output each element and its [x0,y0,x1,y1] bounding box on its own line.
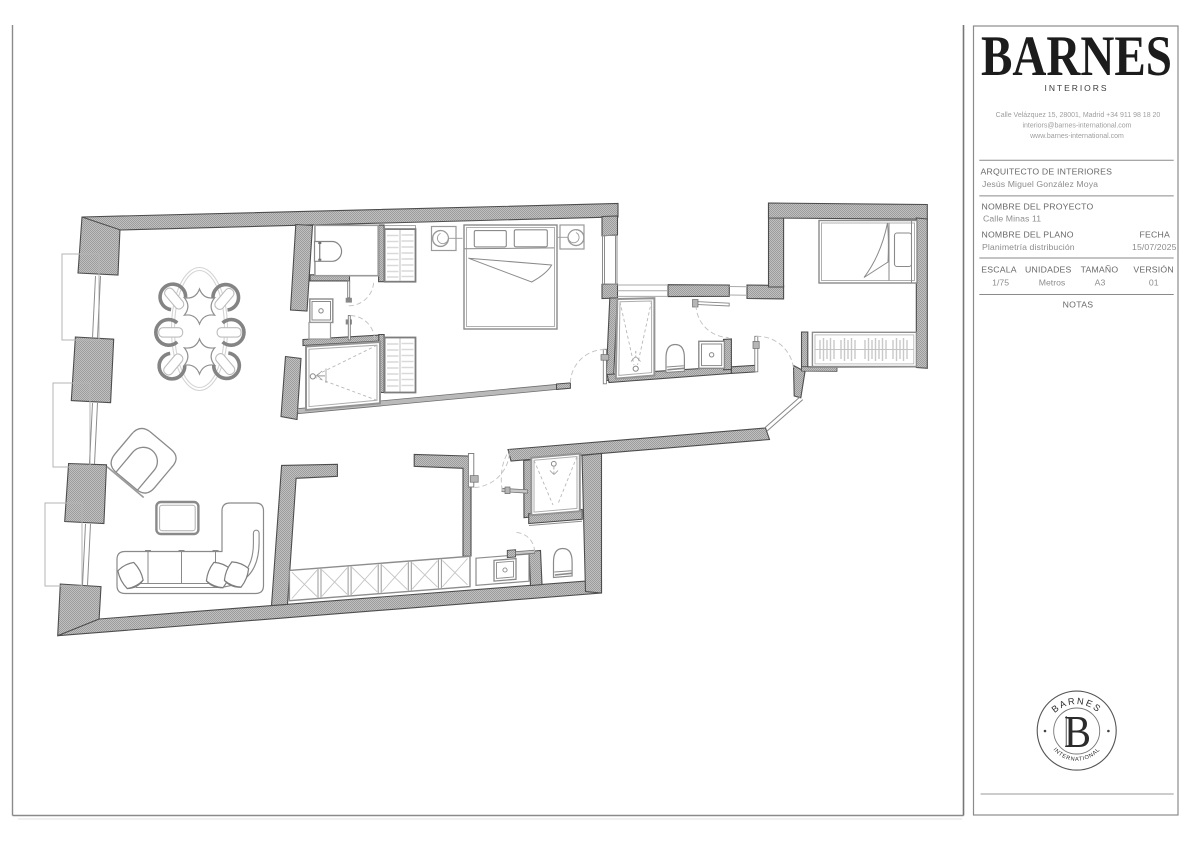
svg-text:TAMAÑO: TAMAÑO [1081,264,1119,274]
svg-text:ARQUITECTO DE INTERIORES: ARQUITECTO DE INTERIORES [981,167,1113,177]
svg-text:B: B [1064,706,1091,757]
svg-text:BARNES: BARNES [981,25,1172,88]
svg-text:interiors@barnes-international: interiors@barnes-international.com [1022,122,1131,129]
svg-text:Planimetría distribución: Planimetría distribución [982,242,1075,252]
svg-text:NOMBRE DEL PLANO: NOMBRE DEL PLANO [982,229,1074,239]
svg-text:VERSIÓN: VERSIÓN [1133,264,1174,274]
svg-text:Calle Velázquez 15, 28001, Mad: Calle Velázquez 15, 28001, Madrid +34 91… [996,112,1161,119]
svg-text:www.barnes-international.com: www.barnes-international.com [1029,133,1124,140]
svg-text:Calle Minas 11: Calle Minas 11 [983,214,1041,224]
svg-text:FECHA: FECHA [1140,229,1170,239]
svg-text:1/75: 1/75 [992,277,1009,287]
svg-text:01: 01 [1149,277,1159,287]
svg-text:NOTAS: NOTAS [1063,300,1094,310]
svg-text:INTERIORS: INTERIORS [1045,83,1109,93]
svg-text:Metros: Metros [1039,277,1066,287]
svg-text:A3: A3 [1095,277,1106,287]
svg-text:Jesús Miguel González Moya: Jesús Miguel González Moya [982,179,1098,189]
svg-text:UNIDADES: UNIDADES [1025,264,1072,274]
svg-text:NOMBRE DEL PROYECTO: NOMBRE DEL PROYECTO [982,202,1094,212]
svg-text:ESCALA: ESCALA [981,264,1016,274]
svg-text:15/07/2025: 15/07/2025 [1132,242,1177,252]
